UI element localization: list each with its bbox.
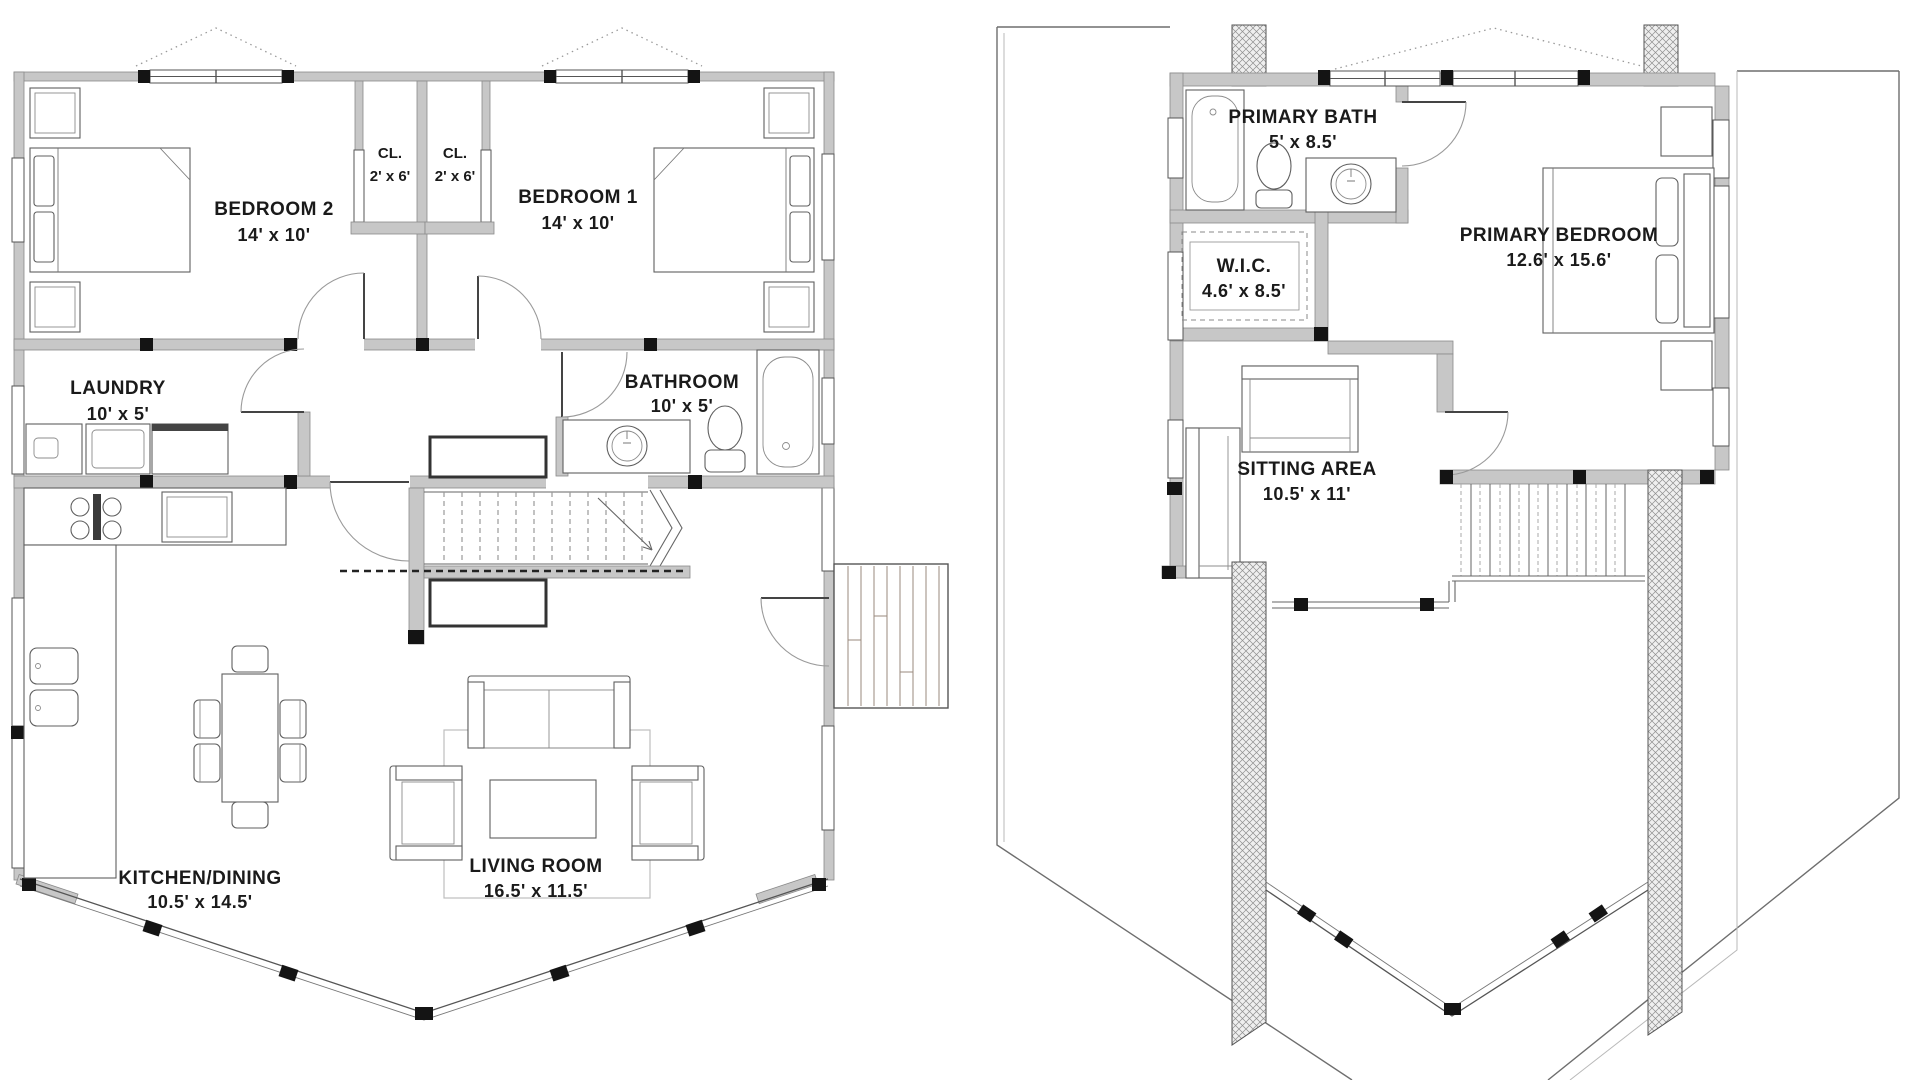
coffee-table (490, 780, 596, 838)
armchair (390, 766, 462, 860)
dining-table (194, 646, 306, 828)
room-label-bedroom1: BEDROOM 1 (518, 187, 638, 208)
balcony-railing (1266, 882, 1648, 1016)
gable-dotted-outline (542, 28, 702, 66)
side-wall-hatch (1648, 470, 1682, 1035)
door-laundry (241, 349, 304, 412)
sofa (468, 676, 630, 748)
room-label-bedroom2: BEDROOM 2 (214, 199, 334, 220)
room-label-primary-bath: PRIMARY BATH (1228, 107, 1377, 128)
bed-primary (1543, 107, 1714, 390)
kitchen-sink (30, 648, 78, 684)
armchair (632, 766, 704, 860)
room-dims-primary-bath: 5' x 8.5' (1269, 132, 1337, 152)
room-label-wic: W.I.C. (1217, 256, 1272, 277)
nightstand (1661, 341, 1712, 390)
room-label-primary-bedroom: PRIMARY BEDROOM (1460, 225, 1659, 246)
room-dims-bedroom1: 14' x 10' (541, 213, 614, 233)
room-dims-living-room: 16.5' x 11.5' (484, 881, 588, 901)
first-floor-plan: BEDROOM 2 14' x 10' CL. 2' x 6' CL. 2' x… (11, 28, 948, 1020)
room-dims-wic: 4.6' x 8.5' (1202, 281, 1286, 301)
room-dims-bathroom: 10' x 5' (651, 396, 714, 416)
floor-plan-canvas: BEDROOM 2 14' x 10' CL. 2' x 6' CL. 2' x… (0, 0, 1920, 1080)
room-label-kitchen-dining: KITCHEN/DINING (118, 868, 281, 889)
cooktop-grill (93, 494, 101, 540)
second-floor-plan: PRIMARY BATH 5' x 8.5' W.I.C. 4.6' x 8.5… (997, 25, 1899, 1080)
room-label-closet-left: CL. (378, 145, 402, 162)
door-bedroom1 (478, 276, 541, 339)
roof-outline (997, 27, 1899, 1080)
room-dims-primary-bedroom: 12.6' x 15.6' (1506, 250, 1611, 270)
side-wall-hatch (1232, 562, 1266, 1045)
room-dims-closet-left: 2' x 6' (370, 168, 411, 185)
room-dims-closet-right: 2' x 6' (435, 168, 476, 185)
refrigerator (162, 492, 232, 542)
nightstand (1661, 107, 1712, 156)
room-label-closet-right: CL. (443, 145, 467, 162)
room-label-bathroom: BATHROOM (625, 372, 739, 393)
door-kitchen (330, 482, 409, 561)
bed-bedroom2 (30, 88, 190, 332)
room-label-sitting-area: SITTING AREA (1237, 459, 1376, 480)
door-bedroom2 (298, 273, 364, 339)
room-dims-laundry: 10' x 5' (87, 404, 150, 424)
prow-window-wall (20, 878, 828, 1020)
bed-bedroom1 (654, 88, 814, 332)
bathtub (757, 350, 819, 474)
room-dims-sitting-area: 10.5' x 11' (1263, 484, 1351, 504)
room-label-laundry: LAUNDRY (70, 378, 166, 399)
door-bathroom (562, 352, 627, 417)
under-stair-closet (430, 580, 546, 626)
door-primary-bath (1402, 102, 1466, 166)
laundry-appliances (26, 424, 228, 474)
room-label-living-room: LIVING ROOM (469, 856, 602, 877)
gable-dotted-outline (136, 28, 296, 66)
room-dims-bedroom2: 14' x 10' (237, 225, 310, 245)
hall-closet (430, 437, 546, 477)
gable-dotted-outline (1335, 28, 1653, 69)
floor-plan-sheet: BEDROOM 2 14' x 10' CL. 2' x 6' CL. 2' x… (0, 0, 1920, 1080)
door-primary-bedroom (1445, 412, 1508, 475)
entry-deck (834, 564, 948, 708)
room-dims-kitchen-dining: 10.5' x 14.5' (147, 892, 252, 912)
